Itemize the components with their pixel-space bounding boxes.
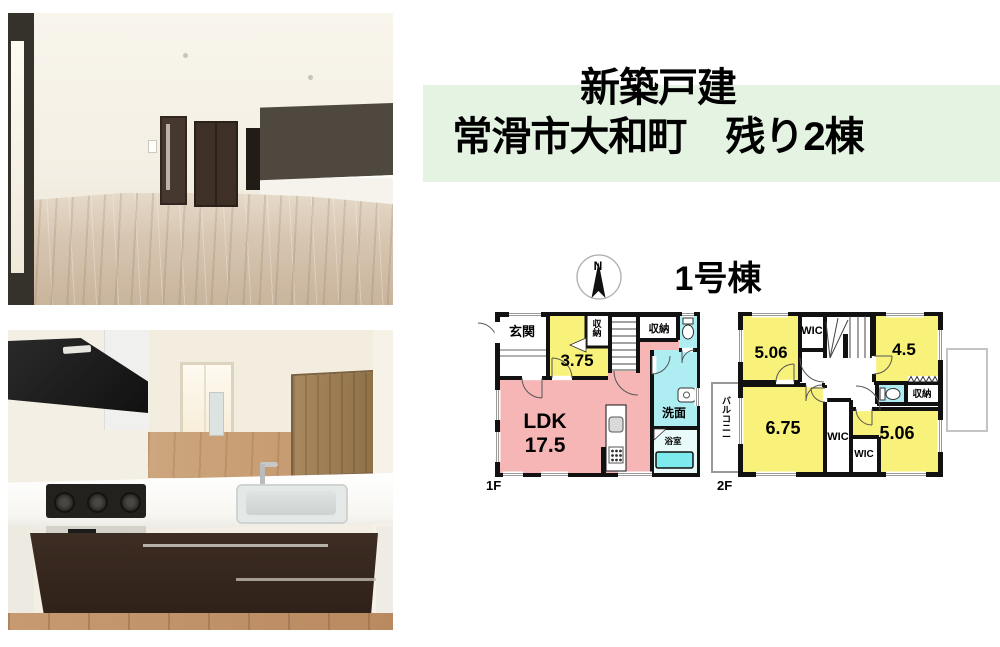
- wood-floor: [8, 193, 393, 305]
- bathtub: [656, 452, 693, 468]
- gas-stove: [46, 484, 146, 518]
- toilet-2f-icon: [880, 388, 900, 400]
- window-pane: [11, 41, 24, 273]
- ceiling-light: [308, 75, 313, 80]
- label-closet-vertical: 収納: [592, 318, 602, 338]
- floorplan-1f: 玄関 3.75 収納 収納 LDK 17.5 洗面 浴室 1F: [478, 312, 701, 494]
- listing-flyer: 新築戸建 常滑市大和町 残り2棟 N 1号棟: [0, 0, 1000, 647]
- floorplan: N 1号棟: [440, 235, 1000, 500]
- label-closet-top: 収納: [649, 322, 670, 335]
- bright-window: [180, 362, 234, 440]
- sink-basin: [246, 491, 336, 515]
- cabinet-handle: [236, 578, 376, 581]
- label-balcony: バルコニー: [722, 396, 731, 442]
- genkan-step: [500, 350, 546, 356]
- label-3-75: 3.75: [560, 351, 593, 370]
- label-2f: 2F: [717, 478, 732, 493]
- label-bedroom-br: 5.06: [879, 423, 914, 443]
- label-ldk: LDK: [523, 410, 566, 433]
- closet-fold-door: [908, 376, 938, 382]
- label-entrance: 玄関: [509, 324, 535, 339]
- label-bedroom-tr: 4.5: [892, 340, 916, 359]
- floorplan-2f: 5.06 WIC 4.5 収納 6.75 WIC WIC 5.06 バルコニー …: [712, 312, 987, 494]
- kitchen-sink: [236, 484, 348, 524]
- window-mullion: [204, 365, 206, 437]
- stairs-2f: [826, 316, 865, 358]
- interior-door: [160, 116, 187, 205]
- living-room-photo: [8, 13, 393, 305]
- label-washroom: 洗面: [662, 405, 686, 420]
- listing-title: 新築戸建 常滑市大和町 残り2棟: [423, 64, 893, 162]
- label-closet-2f: 収納: [912, 388, 931, 400]
- dark-doorway: [246, 128, 260, 190]
- door-glass-slit: [166, 124, 170, 190]
- label-1f: 1F: [486, 478, 501, 493]
- stairs-1f: [612, 322, 636, 370]
- label-bathroom: 浴室: [664, 436, 682, 446]
- label-wic-top: WIC: [801, 325, 822, 337]
- label-bedroom-bl: 6.75: [765, 418, 800, 438]
- kitchen-accent-wall: [260, 103, 393, 181]
- kitchen-photo: [8, 330, 393, 630]
- label-bedroom-tl: 5.06: [754, 343, 787, 362]
- title-line1: 新築戸建: [423, 64, 893, 113]
- burner: [120, 492, 141, 513]
- label-wic-mid: WIC: [827, 431, 848, 443]
- faucet: [260, 464, 265, 486]
- balcony-window-frame: [8, 13, 34, 305]
- door-divider: [215, 123, 217, 205]
- burner: [54, 492, 75, 513]
- kitchen-floor: [8, 613, 393, 630]
- light-switch: [148, 140, 157, 153]
- ceiling-light: [183, 53, 188, 58]
- closet-double-door: [194, 121, 238, 207]
- washbasin-icon: [678, 388, 695, 402]
- slit-window: [209, 392, 224, 436]
- sliding-wood-door: [291, 370, 377, 479]
- compass-icon: N: [577, 255, 621, 299]
- adjacent-plan-fragment: [947, 349, 987, 431]
- toilet-1f-icon: [683, 318, 694, 339]
- title-line2: 常滑市大和町 残り2棟: [423, 113, 893, 162]
- burner: [87, 492, 108, 513]
- label-wic-small: WIC: [854, 449, 873, 460]
- label-ldk-size: 17.5: [525, 434, 566, 457]
- building-name: 1号棟: [675, 260, 763, 298]
- cabinet-handle: [143, 544, 328, 547]
